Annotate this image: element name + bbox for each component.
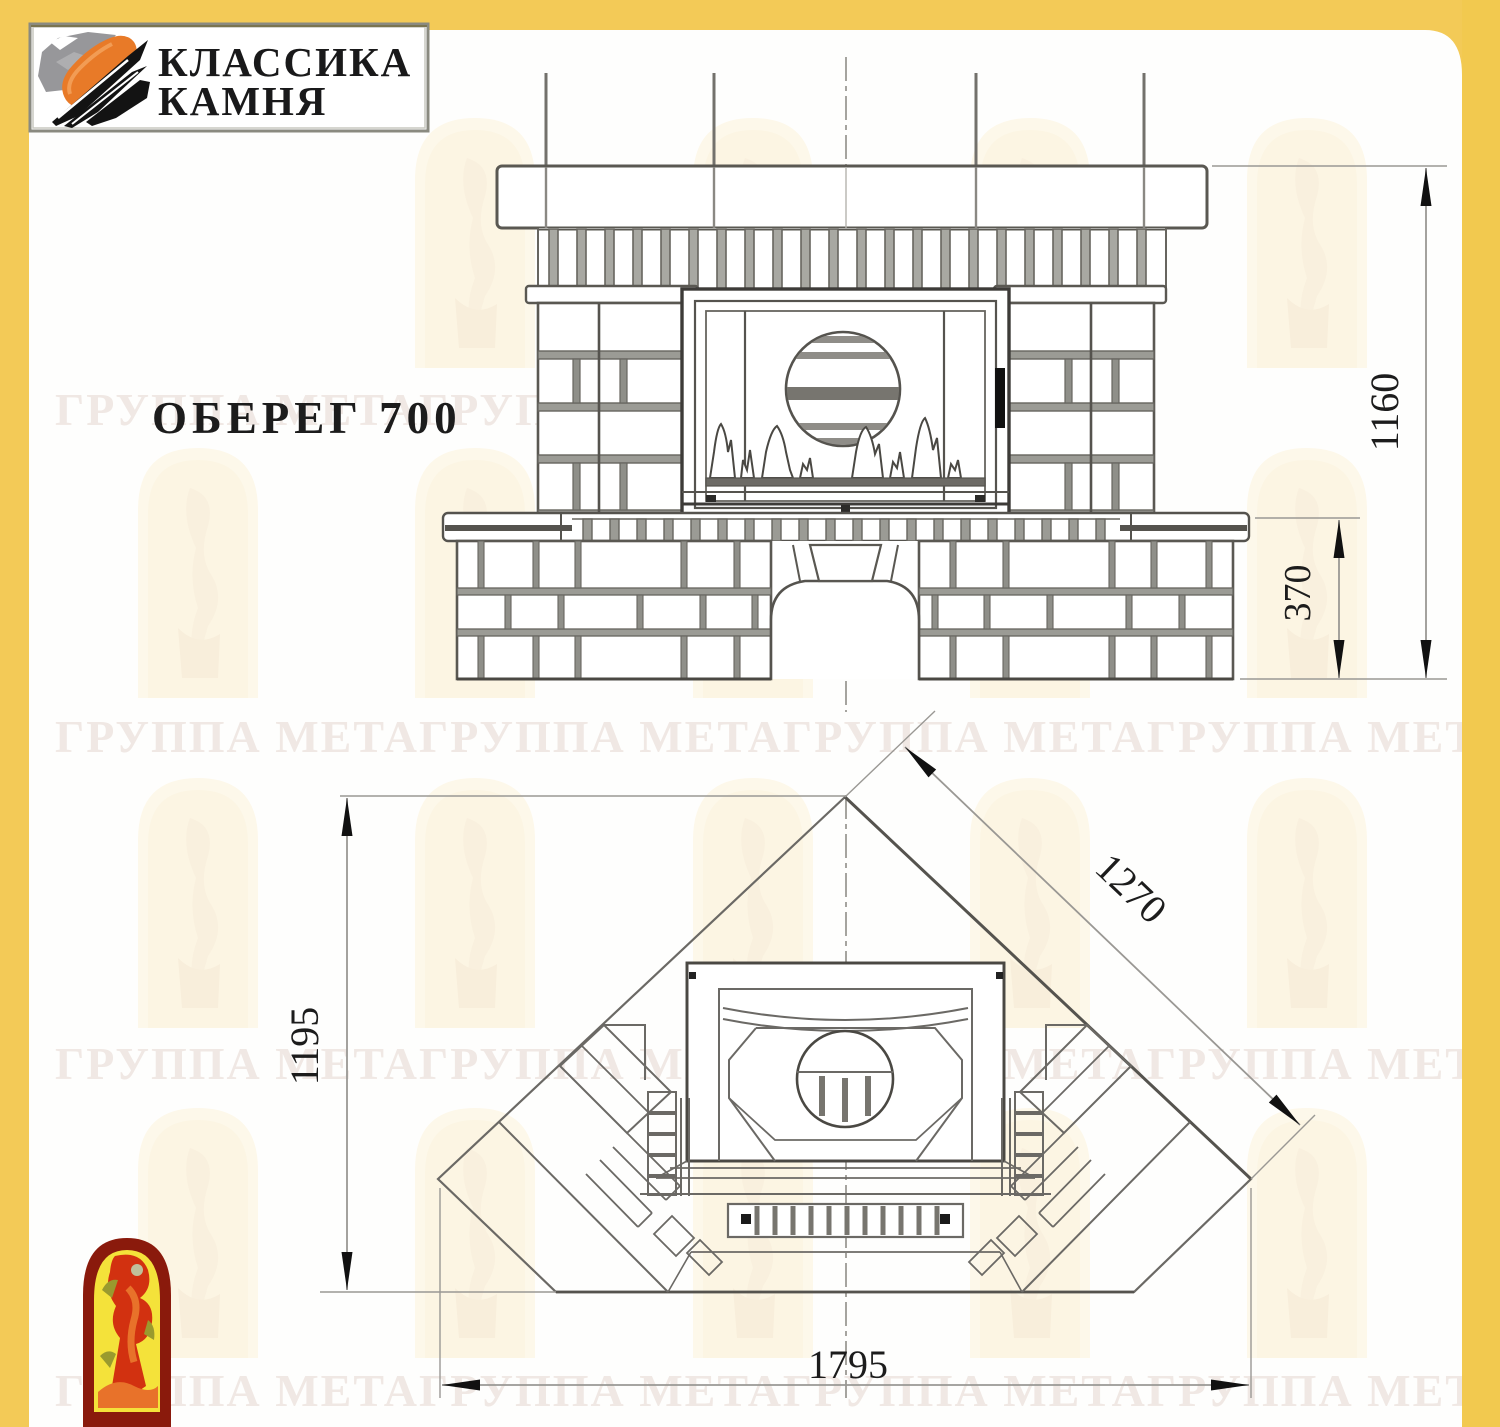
svg-text:1195: 1195 xyxy=(282,1007,327,1086)
svg-text:1795: 1795 xyxy=(808,1342,888,1387)
svg-text:1160: 1160 xyxy=(1362,373,1407,452)
svg-text:ГРУППА МЕТАГРУППА МЕТАГРУППА М: ГРУППА МЕТАГРУППА МЕТАГРУППА МЕТАГРУППА … xyxy=(55,1365,1500,1416)
svg-text:ОБЕРЕГ 700: ОБЕРЕГ 700 xyxy=(152,393,462,443)
svg-text:ГРУППА МЕТАГРУППА МЕТАГРУППА М: ГРУППА МЕТАГРУППА МЕТАГРУППА МЕТАГРУППА … xyxy=(55,711,1500,762)
svg-text:КАМНЯ: КАМНЯ xyxy=(158,78,328,124)
svg-text:370: 370 xyxy=(1277,565,1319,622)
